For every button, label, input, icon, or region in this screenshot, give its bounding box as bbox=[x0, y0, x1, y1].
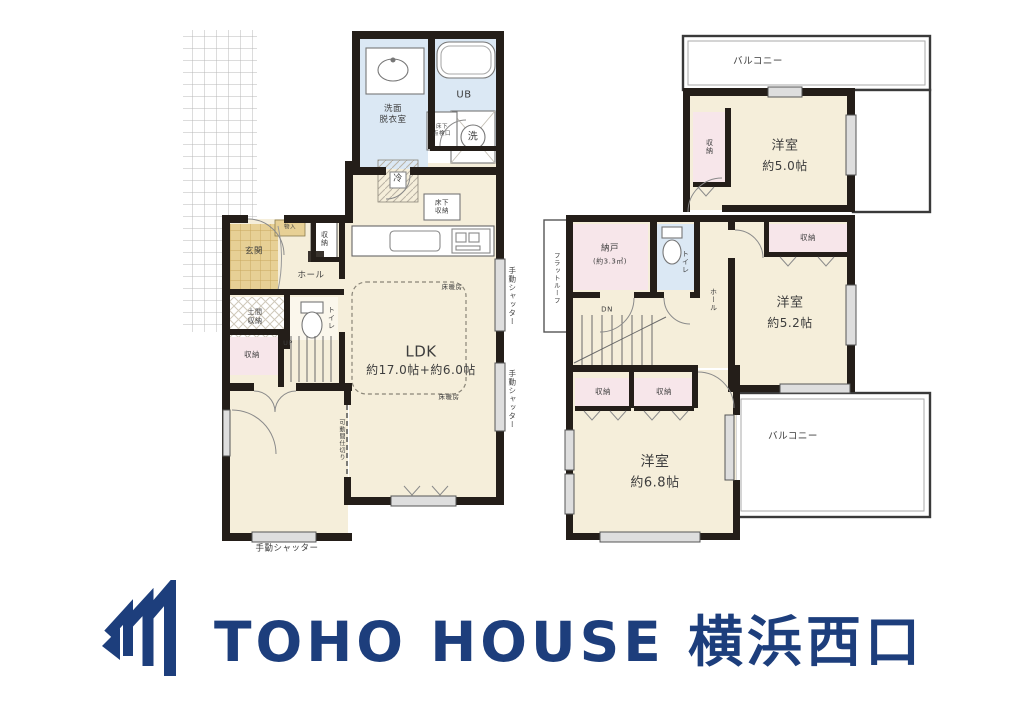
unit-bath-label: UB bbox=[456, 89, 471, 102]
storage-label-room-c1: 収納 bbox=[595, 387, 611, 397]
toho-house-logo-mark bbox=[100, 580, 184, 678]
laundry-label: 洗 bbox=[468, 131, 479, 144]
washbasin-icon bbox=[366, 48, 424, 94]
floorplan-image: 洗面 脱衣室 UB 洗 床下 点検口 冷 床下 収納 LDK 約17.0帖+約6… bbox=[0, 0, 1024, 723]
entrance-label: 玄関 bbox=[245, 246, 263, 257]
storeroom-size-label: (約3.3㎡) bbox=[593, 257, 627, 266]
entry-storage-label: 収納 bbox=[321, 231, 328, 247]
hall-label-2f: ホール bbox=[710, 288, 717, 312]
floor-heating-label-top: 床暖房 bbox=[442, 283, 463, 291]
hall-label-1f: ホール bbox=[297, 270, 324, 281]
room-a-size-label: 約5.0帖 bbox=[762, 159, 808, 175]
washroom-label: 洗面 脱衣室 bbox=[379, 104, 406, 126]
underfloor-storage-label: 床下 収納 bbox=[435, 199, 449, 216]
partition-label: 可動間仕切り bbox=[338, 419, 344, 461]
storage-label-room-a: 収納 bbox=[706, 139, 713, 155]
underfloor-hatch-label: 床下 点検口 bbox=[433, 124, 451, 138]
toilet-icon-2f bbox=[662, 227, 682, 264]
floor2-fixtures bbox=[662, 227, 682, 264]
room-b-size-label: 約5.2帖 bbox=[767, 316, 813, 332]
flat-roof-label: フラットルーフ bbox=[553, 252, 560, 305]
bathtub-icon bbox=[437, 42, 495, 78]
logo-text: TOHO HOUSE 横浜西口 bbox=[214, 597, 924, 677]
ldk-name-label: LDK bbox=[405, 342, 436, 362]
shutter-label-bottom: 手動シャッター bbox=[255, 543, 318, 554]
storage-label-room-b: 収納 bbox=[800, 233, 816, 243]
ldk-size-label: 約17.0帖+約6.0帖 bbox=[366, 363, 476, 379]
shutter-label-right-2: 手動シャッター bbox=[508, 369, 516, 429]
floor-heating-label-bottom: 床暖房 bbox=[439, 393, 460, 401]
room-b-name-label: 洋室 bbox=[776, 296, 803, 313]
room-c-size-label: 約6.8帖 bbox=[630, 476, 679, 493]
toilet-label-1f: トイレ bbox=[328, 306, 335, 330]
shutter-label-right-1: 手動シャッター bbox=[508, 266, 516, 326]
room-c-name-label: 洋室 bbox=[641, 453, 670, 471]
storage-label-1f: 収納 bbox=[244, 350, 260, 360]
entry-cabinet-label: 物入 bbox=[284, 224, 296, 231]
kitchen-counter-icon bbox=[352, 226, 494, 256]
room-a-name-label: 洋室 bbox=[771, 139, 798, 156]
doma-storage-label: 土間 収納 bbox=[248, 308, 263, 326]
refrigerator-label: 冷 bbox=[393, 174, 403, 186]
toilet-label-2f: トイレ bbox=[682, 250, 689, 274]
balcony-label-right: バルコニー bbox=[768, 431, 818, 443]
storage-label-room-c2: 収納 bbox=[656, 387, 672, 397]
stairs-up-label: UP bbox=[283, 339, 293, 347]
stairs-down-label: DN bbox=[601, 305, 613, 314]
storeroom-name-label: 納戸 bbox=[601, 243, 619, 254]
toilet-icon-1f bbox=[301, 302, 323, 338]
balcony-label-top: バルコニー bbox=[733, 56, 783, 68]
